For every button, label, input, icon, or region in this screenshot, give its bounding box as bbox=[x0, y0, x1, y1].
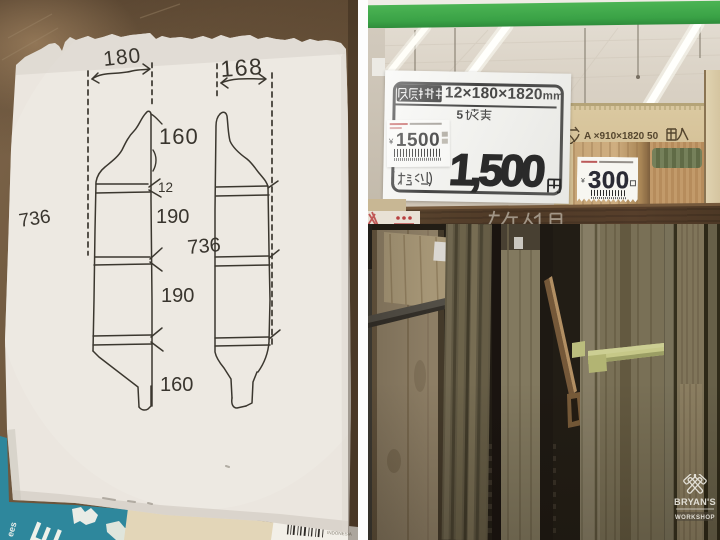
svg-text:160: 160 bbox=[160, 374, 193, 396]
svg-text:190: 190 bbox=[161, 285, 194, 307]
svg-text:A ×910×1820 50: A ×910×1820 50 bbox=[584, 131, 659, 142]
svg-text:160: 160 bbox=[159, 124, 199, 149]
svg-text:WORKSHOP: WORKSHOP bbox=[675, 515, 715, 521]
svg-text:BRYAN'S: BRYAN'S bbox=[674, 497, 716, 507]
svg-text:180: 180 bbox=[102, 44, 142, 71]
svg-text:736: 736 bbox=[187, 234, 222, 259]
svg-text:168: 168 bbox=[220, 53, 265, 82]
svg-text:12: 12 bbox=[158, 180, 173, 195]
svg-text:190: 190 bbox=[156, 206, 189, 228]
